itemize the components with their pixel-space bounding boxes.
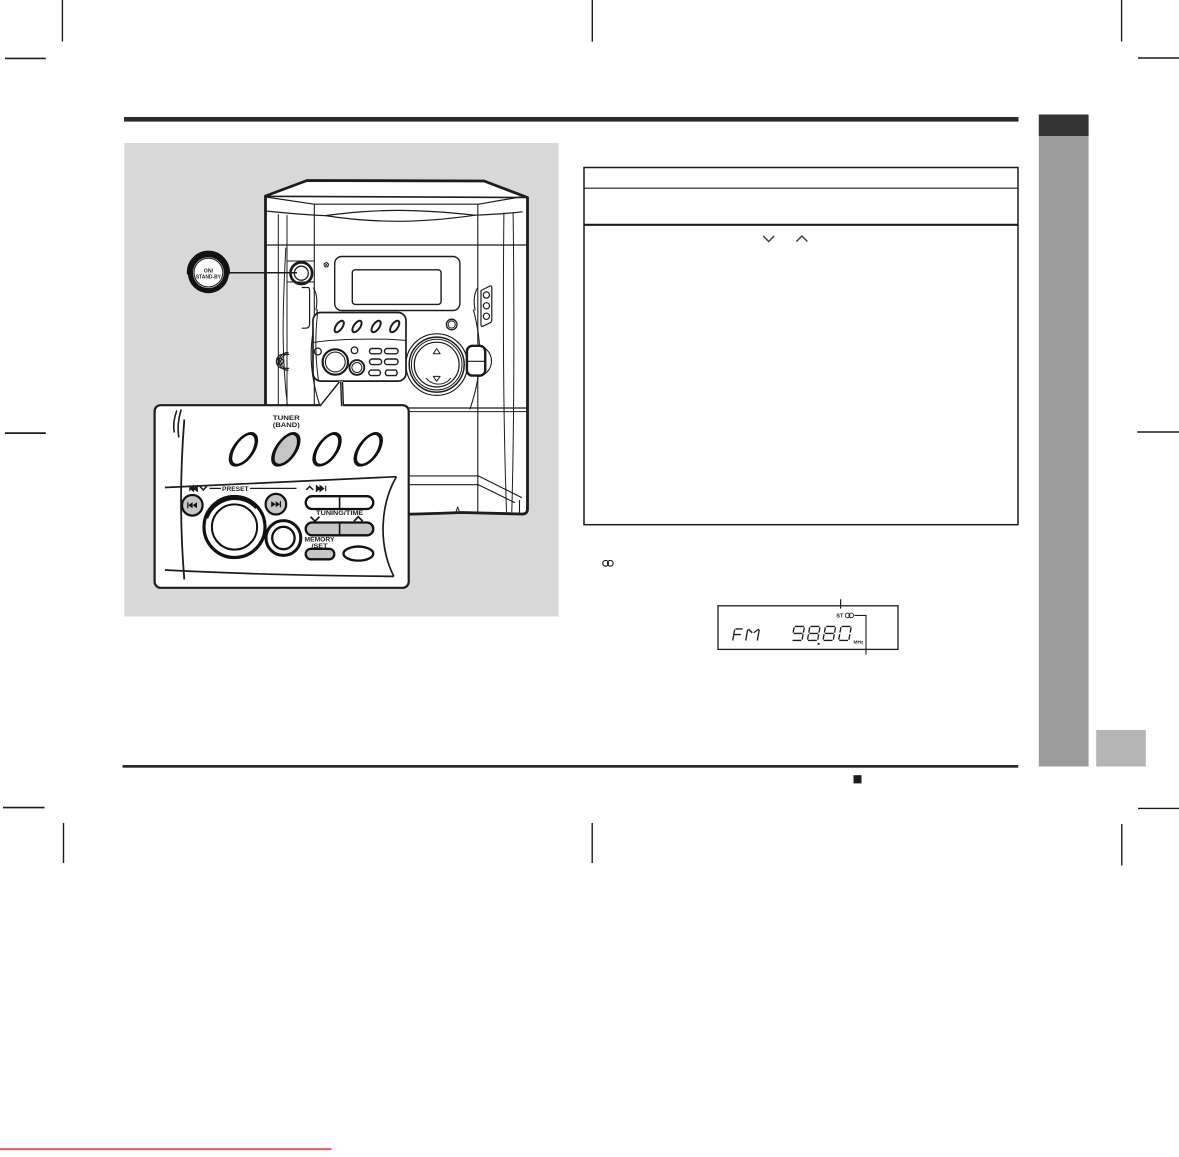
svg-text:TUNING/TIME: TUNING/TIME [316,510,364,517]
svg-text:ST: ST [836,614,844,620]
svg-text:PRESET: PRESET [222,486,249,493]
svg-text:MHz: MHz [854,640,864,646]
svg-text:(BAND): (BAND) [273,423,300,429]
svg-text:STAND-BY: STAND-BY [196,275,222,281]
svg-text:ON/: ON/ [204,268,214,274]
svg-text:TUNER: TUNER [273,415,300,422]
